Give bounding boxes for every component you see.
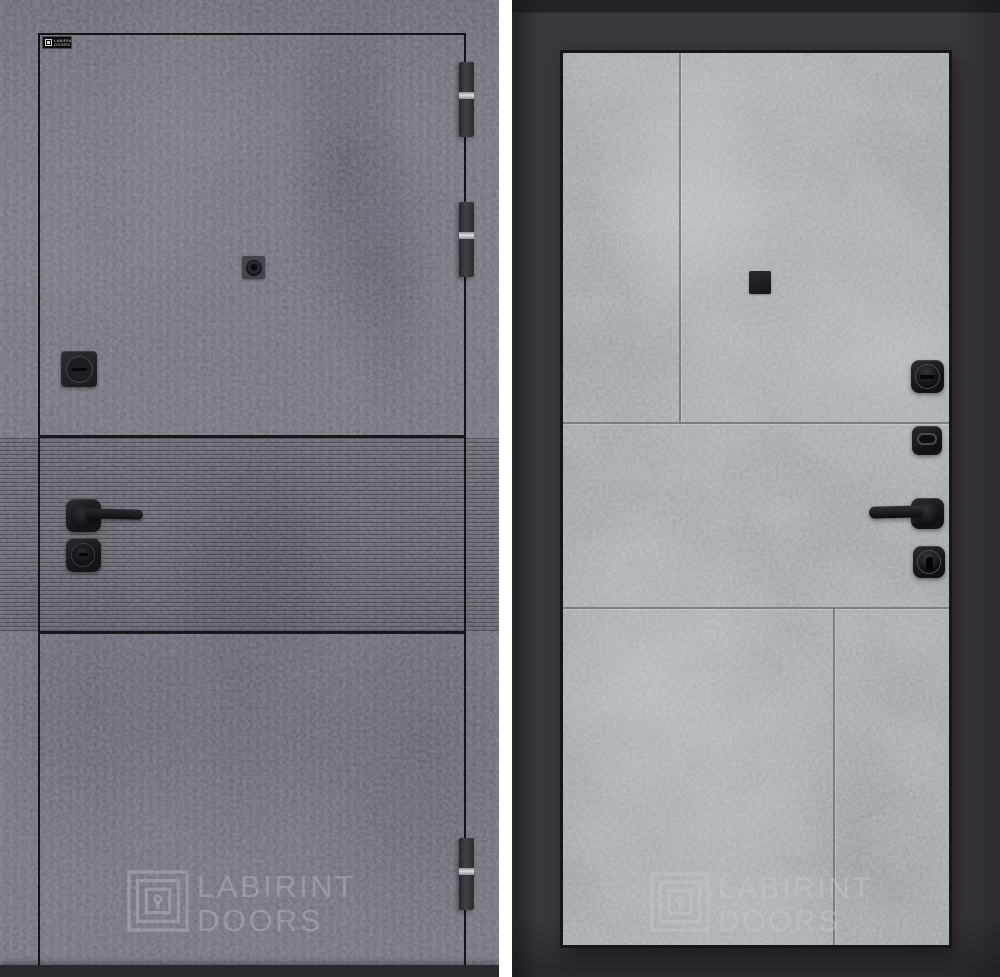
deadbolt-thumbturn-icon: [911, 360, 944, 393]
peephole-interior-icon: [749, 271, 771, 294]
key-slot: [926, 557, 933, 570]
fluted-insert-band: [0, 438, 499, 631]
outline-groove-right: [464, 33, 466, 965]
hinge-chrome-ring: [459, 92, 474, 99]
brand-badge-text: LABIRINT DOORS: [54, 39, 72, 47]
latch-flap: [917, 433, 937, 445]
floor-shadow-strip: [0, 965, 499, 977]
watermark-left: LABIRINT DOORS: [127, 870, 357, 938]
interior-handle-lever: [869, 505, 923, 519]
exterior-thumbturn-lock: [66, 538, 101, 572]
insert-bottom-line: [38, 631, 466, 634]
watermark-line2: DOORS: [197, 904, 357, 938]
outline-groove-left: [38, 33, 40, 965]
insert-top-line: [38, 435, 466, 438]
hinge-chrome-ring: [459, 232, 474, 239]
door-hinge-middle: [459, 202, 474, 277]
keyhole-icon: [913, 546, 945, 578]
labirint-logo-icon: [45, 39, 52, 46]
peephole-icon: [242, 256, 265, 279]
outline-groove-top: [38, 33, 466, 35]
panel-seam-vertical-lower: [833, 609, 835, 945]
door-interior-view: LABIRINT DOORS: [512, 0, 1000, 977]
door-leaf-interior: LABIRINT DOORS: [560, 50, 952, 948]
concrete-texture-overlay: [563, 53, 949, 945]
watermark-right: LABIRINT DOORS: [650, 872, 873, 938]
watermark-line1: LABIRINT: [197, 870, 357, 904]
peephole-lens: [246, 260, 262, 276]
panel-seam-horizontal-2: [563, 607, 949, 609]
watermark-line1: LABIRINT: [718, 872, 873, 905]
lock-cylinder-cover-icon: [61, 351, 97, 387]
night-latch-cover-icon: [912, 426, 942, 455]
watermark-text: LABIRINT DOORS: [197, 870, 357, 938]
labyrinth-watermark-icon: [127, 870, 189, 932]
exterior-handle-lever: [86, 508, 143, 519]
hinge-chrome-ring: [459, 868, 474, 875]
brand-badge: LABIRINT DOORS: [42, 36, 72, 49]
door-hinge-bottom: [459, 838, 474, 910]
watermark-line2: DOORS: [718, 905, 873, 938]
labyrinth-watermark-icon: [650, 872, 710, 932]
panel-seam-horizontal-1: [563, 422, 949, 424]
brand-badge-line2: DOORS: [54, 42, 70, 47]
door-hinge-top: [459, 62, 474, 137]
product-image: LABIRINT DOORS: [0, 0, 1000, 977]
panel-seam-vertical-upper: [679, 53, 681, 422]
door-exterior-view: LABIRINT DOORS: [0, 0, 499, 977]
watermark-text: LABIRINT DOORS: [718, 872, 873, 938]
cylinder-slot: [72, 368, 87, 371]
photo-divider: [499, 0, 512, 977]
